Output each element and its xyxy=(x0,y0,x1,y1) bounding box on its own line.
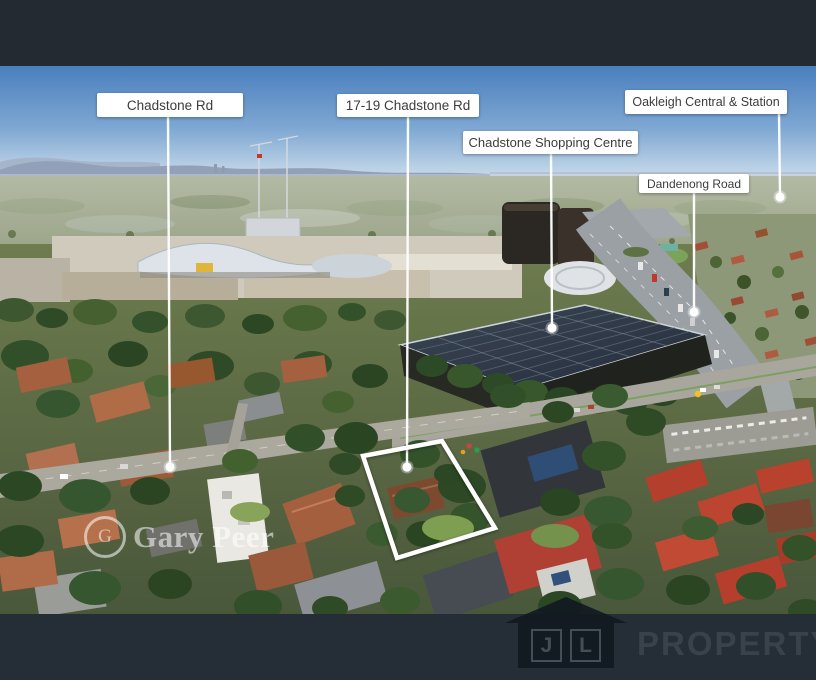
jl-letter-l: L xyxy=(570,629,601,662)
gary-peer-logo-icon: G xyxy=(84,516,126,558)
jl-property-watermark: J L PROPERTY xyxy=(505,597,816,668)
label-oakleigh-central-station: Oakleigh Central & Station xyxy=(625,90,787,114)
shopping-centre-complex xyxy=(0,236,522,302)
jl-letter-j: J xyxy=(531,629,562,662)
marketing-image: Chadstone Rd 17-19 Chadstone Rd Oakleigh… xyxy=(0,0,816,680)
label-chadstone-rd: Chadstone Rd xyxy=(97,93,243,117)
house-logo-icon: J L xyxy=(505,597,627,668)
label-chadstone-shopping-centre: Chadstone Shopping Centre xyxy=(463,131,638,154)
jl-brand-name: PROPERTY xyxy=(637,625,816,663)
house-roof-icon xyxy=(505,597,627,623)
label-17-19-chadstone-rd: 17-19 Chadstone Rd xyxy=(337,94,479,117)
mcdonalds-sign xyxy=(695,391,701,397)
top-letterbox-bar xyxy=(0,0,816,66)
gary-peer-watermark: G Gary Peer xyxy=(84,516,274,558)
label-dandenong-road: Dandenong Road xyxy=(639,174,749,193)
gary-peer-name: Gary Peer xyxy=(133,519,274,555)
